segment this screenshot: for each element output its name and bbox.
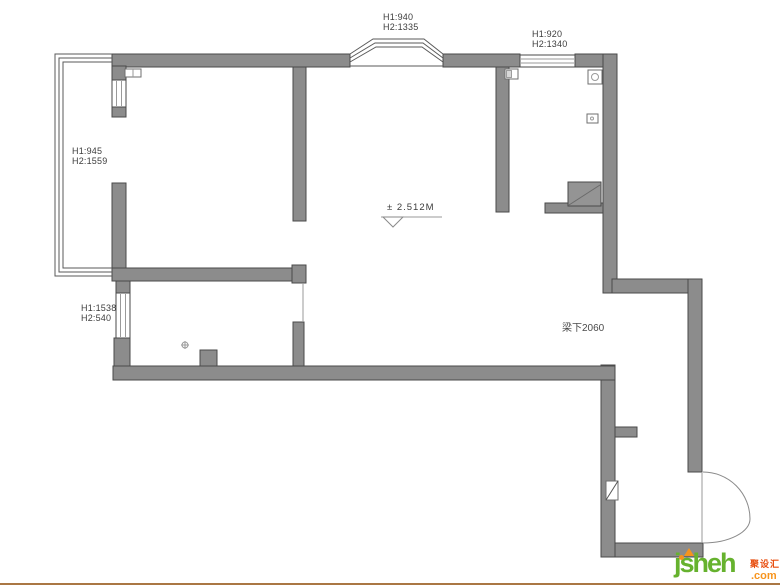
wall-mid-endcap [292, 265, 306, 283]
wall-top-mid [443, 54, 520, 67]
wall-bottom-main [113, 366, 615, 380]
beam-note: 梁下2060 [562, 319, 604, 334]
elevation-marker-text: ± 2.512M [387, 202, 435, 213]
label-top-right-window: H1:920 H2:1340 [532, 29, 567, 49]
column-lowerleft [200, 350, 217, 366]
pier-lowerleft-top [116, 281, 130, 293]
label-lower-left-window: H1:1538 H2:540 [81, 303, 116, 323]
watermark-logo[interactable]: jsheh 聚设汇 .com [672, 547, 780, 585]
wall-top-left [112, 54, 350, 67]
window-top-right [520, 55, 575, 67]
label-top-right-window-h1: H1:920 [532, 29, 567, 39]
window-left-upper [112, 80, 126, 107]
label-bay-window-h1: H1:940 [383, 12, 418, 22]
wall-left-long [112, 183, 126, 269]
pier-left-second [112, 107, 126, 117]
fixture-drain-box [588, 70, 602, 84]
logo-brand-text: jsheh [674, 548, 735, 579]
logo-jdot-icon [679, 555, 684, 560]
logo-suffix-text: .com [751, 570, 777, 582]
label-left-window: H1:945 H2:1559 [72, 146, 107, 166]
label-lower-left-window-h1: H1:1538 [81, 303, 116, 313]
elevation-marker-triangle [383, 217, 403, 227]
wall-mid-horizontal [112, 268, 293, 281]
wall-right-upper [603, 54, 617, 293]
wall-right-mid [688, 279, 702, 472]
wall-entry-left [601, 365, 615, 557]
doors [303, 283, 750, 543]
label-left-window-h2: H2:1559 [72, 156, 107, 166]
window-lower-left [116, 293, 130, 338]
wall-bedroom-divider [293, 67, 306, 221]
logo-cjk-tag: 聚设汇 [750, 557, 780, 570]
label-lower-left-window-h2: H2:540 [81, 313, 116, 323]
pier-lowerleft-bottom [114, 338, 130, 366]
pier-left-top [112, 66, 126, 80]
fixture-box-bathroom-left-inner [507, 71, 512, 78]
wall-lowerleft-right [293, 322, 304, 366]
fixture-small-box [587, 114, 598, 123]
wall-entry-stub [615, 427, 637, 437]
shower-platform [568, 182, 601, 206]
label-left-window-h1: H1:945 [72, 146, 107, 156]
floor-plan-canvas [0, 0, 780, 585]
elevation-marker-symbol [381, 217, 442, 227]
label-bay-window-h2: H2:1335 [383, 22, 418, 32]
label-bay-window: H1:940 H2:1335 [383, 12, 418, 32]
ceiling-point-cross [181, 341, 189, 349]
fixtures [125, 69, 618, 500]
bay-window [350, 39, 443, 66]
label-top-right-window-h2: H2:1340 [532, 39, 567, 49]
entry-door-arc-large [703, 472, 750, 519]
entry-door-arc-small [703, 519, 750, 543]
wall-bathroom-west [496, 67, 509, 212]
floor-plan-page: H1:940 H2:1335 H1:920 H2:1340 H1:945 H2:… [0, 0, 780, 585]
